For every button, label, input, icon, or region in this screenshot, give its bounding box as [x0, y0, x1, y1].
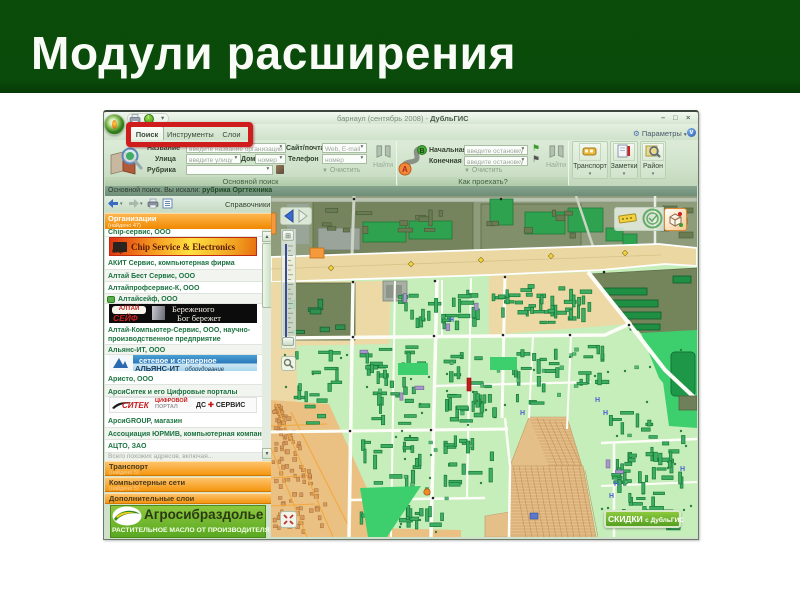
- svg-text:Н: Н: [603, 410, 608, 417]
- svg-text:Н: Н: [609, 493, 614, 500]
- svg-text:Н: Н: [614, 481, 619, 488]
- svg-text:Н: Н: [520, 410, 525, 417]
- svg-text:A: A: [402, 165, 408, 174]
- svg-text:B: B: [420, 148, 425, 155]
- svg-text:Н: Н: [680, 466, 685, 473]
- svg-text:Н: Н: [595, 397, 600, 404]
- svg-text:Н: Н: [449, 317, 454, 324]
